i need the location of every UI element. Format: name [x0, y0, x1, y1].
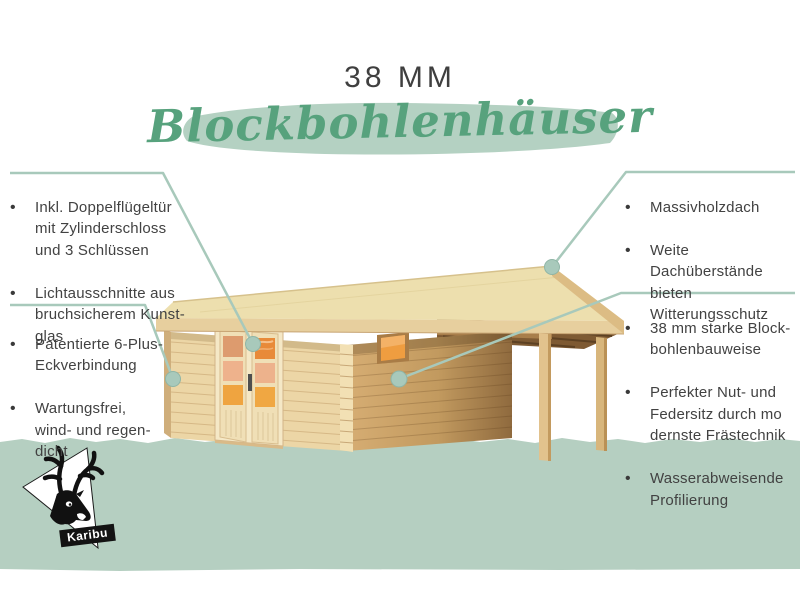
- annotation-left-bottom: Patentierte 6-Plus- Eckverbindung Wartun…: [5, 312, 190, 484]
- annotation-item: Wartungsfrei, wind- und regen- dicht: [5, 398, 190, 463]
- annotation-right-bottom: 38 mm starke Block- bohlenbauweise Perfe…: [620, 296, 800, 533]
- annotation-item: Perfekter Nut- und Federsitz durch mo de…: [620, 382, 800, 447]
- callout-dot-wall: [391, 371, 407, 387]
- roof: [156, 266, 624, 334]
- annotation-item: Inkl. Doppelflügeltür mit Zylinderschlos…: [5, 197, 190, 262]
- infographic-page: 38 MM Blockbohlenhäuser Inkl. Doppelflüg…: [0, 0, 800, 600]
- callout-dot-door: [246, 337, 261, 352]
- annotation-item: Wasserabweisende Profilierung: [620, 468, 800, 511]
- corner-joint: [340, 344, 353, 452]
- door-glass-left: [223, 336, 243, 405]
- annotation-item: 38 mm starke Block- bohlenbauweise: [620, 318, 800, 361]
- callout-dot-roof: [545, 260, 560, 275]
- door-handle: [248, 374, 252, 391]
- annotation-item: Massivholzdach: [620, 197, 800, 219]
- annotation-item: Patentierte 6-Plus- Eckverbindung: [5, 334, 190, 377]
- canopy-post-front: [539, 333, 551, 461]
- shed-window: [377, 332, 409, 364]
- canopy-post-rear: [596, 337, 607, 451]
